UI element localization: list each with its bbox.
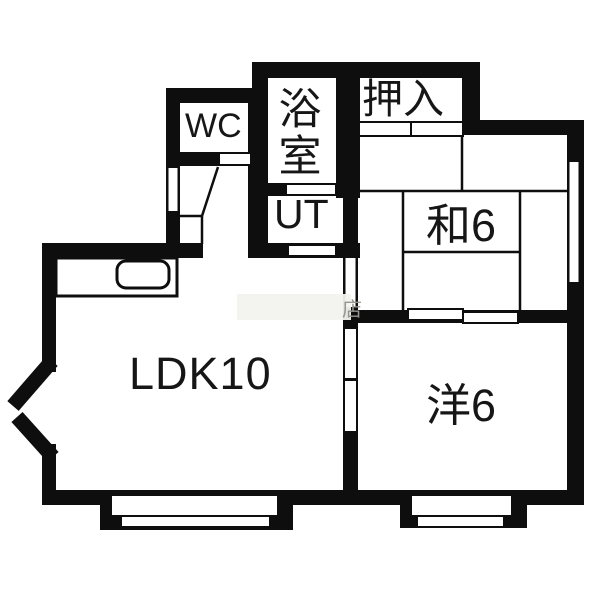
sliding-door-japanese-western-1 [408, 309, 463, 320]
wall-ldk-top-left [42, 243, 203, 258]
hallway-lines [180, 167, 218, 244]
wall-top-right [462, 120, 583, 135]
door-ut-ldk [288, 245, 336, 256]
kitchen-sink [117, 261, 169, 288]
room-label-closet: 押入 [362, 79, 444, 120]
wall-spine-upper [336, 62, 360, 198]
room-label-utility: UT [274, 194, 329, 235]
room-label-western-room: 洋6 [426, 383, 496, 428]
window-bay-western-outer-sash [411, 495, 512, 516]
watermark-text: 店 [342, 300, 362, 320]
kitchen [56, 258, 177, 296]
wall-left-upper [42, 243, 56, 372]
wall-wc-bath-divider [248, 88, 268, 258]
sliding-door-japanese-western-2 [463, 312, 518, 323]
door-wc [219, 153, 251, 165]
window-right-japanese [569, 161, 580, 283]
entrance-lower-band [17, 417, 53, 457]
window-bay-ldk-outer-sash [111, 495, 278, 516]
room-label-wc: WC [185, 109, 242, 143]
sliding-door-ldk-western-2 [344, 380, 357, 432]
room-label-bathroom: 浴室 [275, 87, 325, 182]
room-label-japanese-room: 和6 [426, 203, 496, 248]
floor-plan: WC 浴室 押入 UT 和6 LDK10 洋6 店 [0, 0, 600, 600]
room-label-ldk: LDK10 [129, 351, 272, 396]
entrance-upper-band [13, 361, 52, 406]
watermark-band [237, 294, 351, 320]
entrance [13, 361, 53, 457]
wc-door-swing [202, 167, 218, 216]
window-bay-western-inner-sash [417, 516, 504, 527]
sliding-door-ldk-western-1 [344, 328, 357, 379]
window-hallway-left [168, 167, 179, 212]
window-bay-ldk-inner-sash [121, 516, 270, 527]
